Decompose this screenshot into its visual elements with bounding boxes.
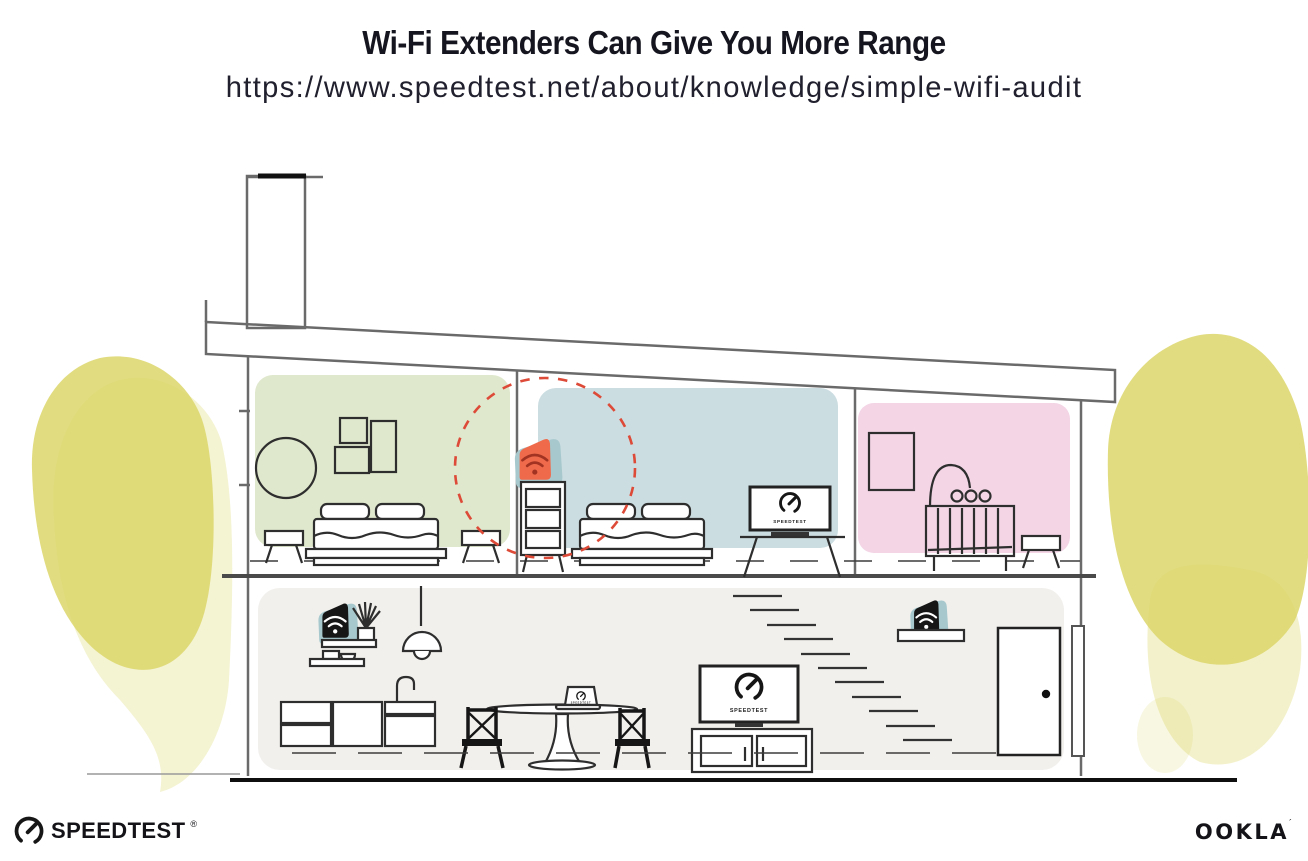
- wifi-extender-bedroom: [515, 439, 563, 488]
- tv-living-room: SPEEDTEST: [692, 666, 812, 772]
- page-title: Wi-Fi Extenders Can Give You More Range: [65, 24, 1242, 62]
- door-knob: [1042, 690, 1050, 698]
- foliage-right-drip: [1137, 697, 1193, 773]
- speedtest-wordmark: SPEEDTEST: [51, 818, 185, 844]
- bed-center: [572, 504, 712, 565]
- speedtest-gauge-logo-icon: [14, 816, 44, 846]
- speedtest-logo: SPEEDTEST ®: [14, 816, 199, 846]
- chimney: [247, 176, 305, 328]
- ookla-wordmark: OOKLA: [1195, 820, 1289, 844]
- hallway-shelf: [898, 630, 964, 641]
- shelf-upper: [322, 640, 376, 647]
- ookla-logo: OOKLA ´: [1195, 820, 1292, 844]
- door-frame-strip: [1072, 626, 1084, 756]
- foliage-left: [32, 356, 214, 670]
- tv-screen-label: SPEEDTEST: [773, 519, 807, 524]
- house-illustration: SPEEDTEST: [0, 0, 1308, 861]
- room-bg-nursery: [858, 403, 1070, 553]
- tv-base: [735, 723, 763, 727]
- bed-left: [306, 504, 446, 565]
- tv-base: [771, 532, 809, 536]
- tv-screen-label: SPEEDTEST: [730, 708, 768, 714]
- ookla-trademark-mark: ´: [1289, 818, 1292, 828]
- header: Wi-Fi Extenders Can Give You More Range …: [0, 24, 1308, 105]
- source-url: https://www.speedtest.net/about/knowledg…: [20, 71, 1289, 105]
- dresser: [521, 482, 565, 572]
- foliage-right: [1108, 334, 1308, 665]
- registered-mark: ®: [190, 819, 197, 829]
- front-door: [998, 628, 1060, 755]
